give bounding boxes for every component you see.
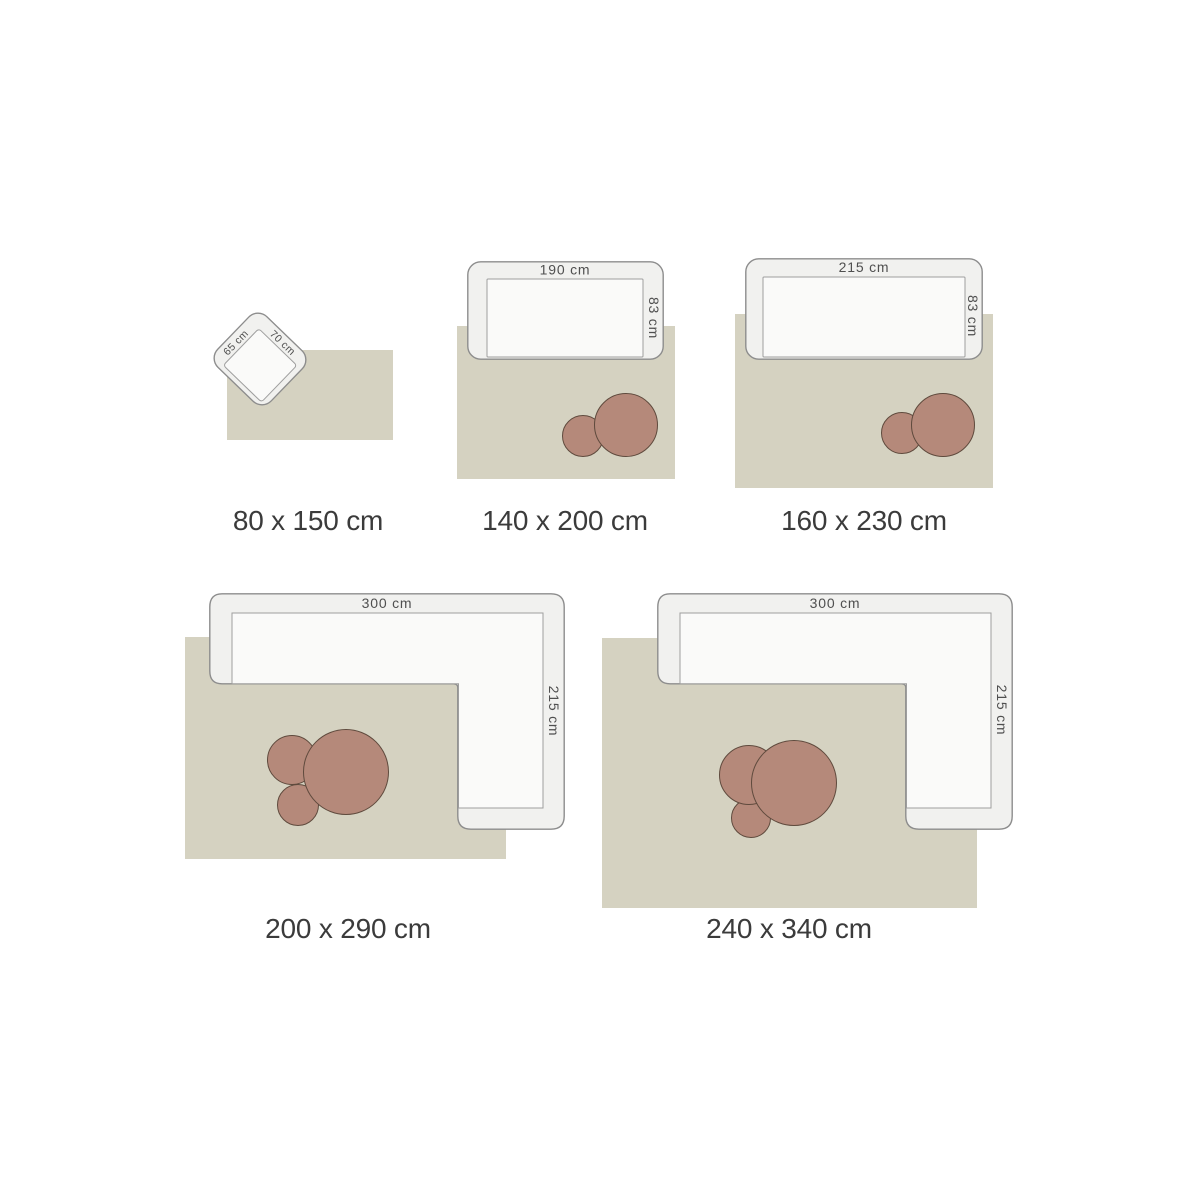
size-label-160x230: 160 x 230 cm	[781, 505, 947, 537]
sofa-icon: 190 cm 83 cm	[467, 261, 664, 360]
coffee-table-large-icon	[594, 393, 658, 457]
coffee-table-small-icon	[731, 798, 771, 838]
rug-240x340	[602, 638, 977, 908]
rug-size-guide: 70 cm 65 cm 80 x 150 cm 190 cm 83 cm 140…	[0, 0, 1200, 1200]
sofa-seat	[487, 279, 643, 357]
size-label-240x340: 240 x 340 cm	[706, 913, 872, 945]
coffee-table-large-icon	[303, 729, 389, 815]
size-label-140x200: 140 x 200 cm	[482, 505, 648, 537]
coffee-table-small-icon	[881, 412, 923, 454]
sofa-width-dimension: 215 cm	[839, 259, 890, 275]
rug-160x230	[735, 314, 993, 488]
corner-sofa-seat	[680, 613, 991, 808]
coffee-table-small-icon	[562, 415, 604, 457]
corner-sofa-width-dimension: 300 cm	[810, 595, 861, 611]
panel-160x230: 215 cm 83 cm 160 x 230 cm	[0, 0, 1200, 1200]
rug-80x150	[227, 350, 393, 440]
coffee-table-large-icon	[911, 393, 975, 457]
sofa-seat	[763, 277, 965, 357]
corner-sofa-outline	[658, 594, 1012, 829]
corner-sofa-icon: 300 cm 215 cm	[209, 593, 565, 830]
corner-sofa-seat	[232, 613, 543, 808]
panel-240x340: 300 cm 215 cm 240 x 340 cm	[0, 0, 1200, 1200]
sofa-icon: 215 cm 83 cm	[745, 258, 983, 360]
coffee-table-medium-icon	[267, 735, 317, 785]
armchair-width-dimension: 70 cm	[267, 328, 297, 358]
size-label-200x290: 200 x 290 cm	[265, 913, 431, 945]
corner-sofa-outline	[210, 594, 564, 829]
sofa-depth-dimension: 83 cm	[646, 297, 662, 339]
armchair-depth-dimension: 65 cm	[221, 328, 251, 358]
coffee-table-large-icon	[751, 740, 837, 826]
panel-80x150: 70 cm 65 cm 80 x 150 cm	[0, 0, 1200, 1200]
corner-sofa-depth-dimension: 215 cm	[994, 685, 1010, 736]
panel-200x290: 300 cm 215 cm 200 x 290 cm	[0, 0, 1200, 1200]
rug-200x290	[185, 637, 506, 859]
corner-sofa-depth-dimension: 215 cm	[546, 686, 562, 737]
sofa-outline	[468, 262, 663, 359]
sofa-width-dimension: 190 cm	[540, 262, 591, 278]
armchair-seat	[223, 329, 297, 403]
armchair-outline	[209, 308, 311, 410]
sofa-depth-dimension: 83 cm	[965, 295, 981, 337]
coffee-table-small-icon	[277, 784, 319, 826]
coffee-table-medium-icon	[719, 745, 779, 805]
armchair-icon: 70 cm 65 cm	[208, 307, 313, 412]
sofa-outline	[746, 259, 982, 359]
rug-140x200	[457, 326, 675, 479]
panel-140x200: 190 cm 83 cm 140 x 200 cm	[0, 0, 1200, 1200]
corner-sofa-width-dimension: 300 cm	[362, 595, 413, 611]
size-label-80x150: 80 x 150 cm	[233, 505, 383, 537]
corner-sofa-icon: 300 cm 215 cm	[657, 593, 1013, 830]
